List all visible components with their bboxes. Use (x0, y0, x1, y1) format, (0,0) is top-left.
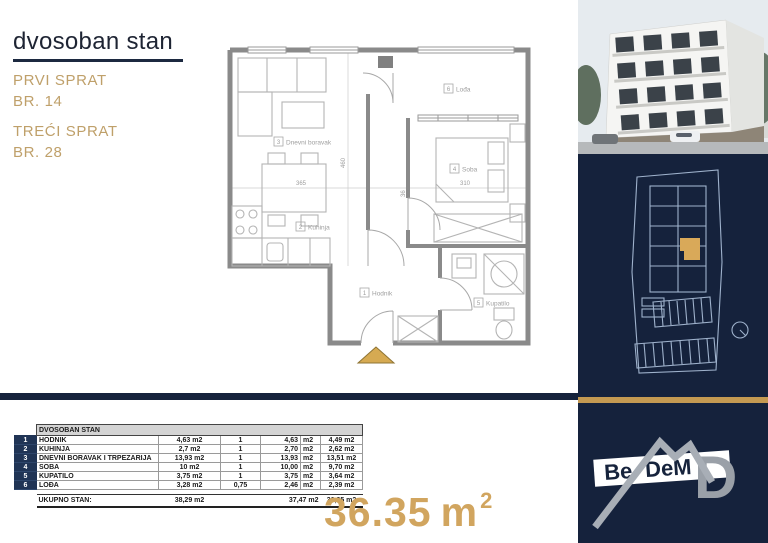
dim-living-width: 365 (296, 181, 307, 187)
room-value: 13,93 (261, 454, 301, 463)
room-value: 4,63 (261, 436, 301, 445)
dimension-lines (228, 50, 528, 266)
dimension-labels: 365 460 310 36 (296, 157, 471, 197)
total-label: UKUPNO STAN: (37, 495, 159, 507)
room-area: 2,7 m2 (159, 445, 221, 454)
summary-area: 36.35m2 (324, 488, 493, 536)
room-label-hodnik: 1 Hodnik (360, 288, 393, 298)
table-row: 2 KUHINJA 2,7 m2 1 2,70 m2 2,62 m2 (15, 445, 363, 454)
door-arcs (361, 73, 472, 343)
entrance-marker-icon (358, 347, 394, 363)
room-reduced: 9,70 m2 (321, 463, 363, 472)
svg-text:Lođa: Lođa (456, 87, 471, 94)
room-unit: m2 (301, 481, 321, 490)
room-label-lodja: 6 Lođa (444, 84, 471, 94)
svg-text:Hodnik: Hodnik (372, 291, 393, 298)
main-panel: dvosoban stan PRVI SPRAT BR. 14 TREĆI SP… (0, 0, 578, 543)
summary-area-value: 36.35 (324, 489, 432, 535)
row-num: 3 (15, 454, 37, 463)
row-num: 6 (15, 481, 37, 490)
svg-text:Dnevni boravak: Dnevni boravak (286, 140, 332, 147)
svg-text:3: 3 (277, 140, 281, 146)
car-icon (592, 134, 618, 144)
floor1-label: PRVI SPRAT (13, 70, 223, 91)
title-block: dvosoban stan PRVI SPRAT BR. 14 TREĆI SP… (13, 28, 223, 163)
table-row: 5 KUPATILO 3,75 m2 1 3,75 m2 3,64 m2 (15, 472, 363, 481)
building-side (726, 20, 764, 132)
svg-text:Kupatilo: Kupatilo (486, 301, 510, 308)
svg-text:6: 6 (447, 87, 451, 93)
room-name: LOĐA (37, 481, 159, 490)
floor2-label: TREĆI SPRAT (13, 121, 223, 142)
summary-area-unit: m (441, 489, 478, 535)
floor2-number: BR. 28 (13, 142, 223, 163)
total-row: UKUPNO STAN: 38,29 m2 37,47 m2 36,35 m2 (15, 495, 363, 507)
table-row: 4 SOBA 10 m2 1 10,00 m2 9,70 m2 (15, 463, 363, 472)
room-unit: m2 (301, 463, 321, 472)
furniture (232, 58, 525, 342)
title-underline (13, 59, 183, 62)
room-unit: m2 (301, 436, 321, 445)
total-value: 37,47 m2 (261, 495, 321, 507)
logo-letter-d: D (694, 444, 737, 511)
room-area: 3,28 m2 (159, 481, 221, 490)
room-name: HODNIK (37, 436, 159, 445)
svg-text:1: 1 (363, 291, 367, 297)
room-label-soba: 4 Soba (450, 164, 478, 174)
row-num: 4 (15, 463, 37, 472)
dim-bedroom-width: 310 (460, 181, 471, 187)
room-value: 3,75 (261, 472, 301, 481)
room-coef: 1 (221, 436, 261, 445)
room-reduced: 3,64 m2 (321, 472, 363, 481)
floor-plan: 365 460 310 36 3 Dnevni boravak 6 Lo (222, 34, 542, 366)
room-area: 3,75 m2 (159, 472, 221, 481)
dim-wall: 36 (401, 190, 407, 197)
wall-pier (378, 56, 393, 68)
room-unit: m2 (301, 445, 321, 454)
dim-plan-depth: 460 (341, 157, 347, 168)
navy-divider-bar (0, 393, 578, 400)
room-value: 10,00 (261, 463, 301, 472)
floor1-number: BR. 14 (13, 91, 223, 112)
room-coef: 1 (221, 445, 261, 454)
room-name: KUHINJA (37, 445, 159, 454)
page-title: dvosoban stan (13, 28, 223, 56)
svg-text:Kuhinja: Kuhinja (308, 225, 330, 232)
summary-area-sup: 2 (480, 488, 493, 513)
room-reduced: 13,51 m2 (321, 454, 363, 463)
room-coef: 1 (221, 454, 261, 463)
table-row: 6 LOĐA 3,28 m2 0,75 2,46 m2 2,39 m2 (15, 481, 363, 490)
room-coef: 0,75 (221, 481, 261, 490)
room-coef: 1 (221, 463, 261, 472)
building-photo (578, 0, 768, 154)
room-area: 4,63 m2 (159, 436, 221, 445)
svg-text:Soba: Soba (462, 167, 478, 174)
table-row: 3 DNEVNI BORAVAK I TRPEZARIJA 13,93 m2 1… (15, 454, 363, 463)
area-table: DVOSOBAN STAN 1 HODNIK 4,63 m2 1 4,63 m2… (14, 424, 363, 508)
row-num: 1 (15, 436, 37, 445)
bedem-logo: Be DeM D (578, 403, 768, 543)
room-name: KUPATILO (37, 472, 159, 481)
room-unit: m2 (301, 472, 321, 481)
room-area: 13,93 m2 (159, 454, 221, 463)
room-label-kupatilo: 5 Kupatilo (474, 298, 510, 308)
room-coef: 1 (221, 472, 261, 481)
sidebar: Be DeM D (578, 0, 768, 543)
brochure-page: dvosoban stan PRVI SPRAT BR. 14 TREĆI SP… (0, 0, 768, 543)
room-value: 2,70 (261, 445, 301, 454)
room-label-dnevni: 3 Dnevni boravak (274, 137, 332, 147)
svg-text:5: 5 (477, 301, 481, 307)
room-reduced: 4,49 m2 (321, 436, 363, 445)
site-plan (578, 154, 768, 397)
car-icon (670, 131, 700, 142)
total-area: 38,29 m2 (159, 495, 221, 507)
room-name: SOBA (37, 463, 159, 472)
floor-plan-drawing: 365 460 310 36 3 Dnevni boravak 6 Lo (222, 34, 542, 366)
room-name: DNEVNI BORAVAK I TRPEZARIJA (37, 454, 159, 463)
row-num: 5 (15, 472, 37, 481)
svg-text:4: 4 (453, 167, 457, 173)
room-unit: m2 (301, 454, 321, 463)
room-area: 10 m2 (159, 463, 221, 472)
row-num: 2 (15, 445, 37, 454)
table-title: DVOSOBAN STAN (37, 425, 363, 436)
room-value: 2,46 (261, 481, 301, 490)
room-reduced: 2,62 m2 (321, 445, 363, 454)
table-row: 1 HODNIK 4,63 m2 1 4,63 m2 4,49 m2 (15, 436, 363, 445)
